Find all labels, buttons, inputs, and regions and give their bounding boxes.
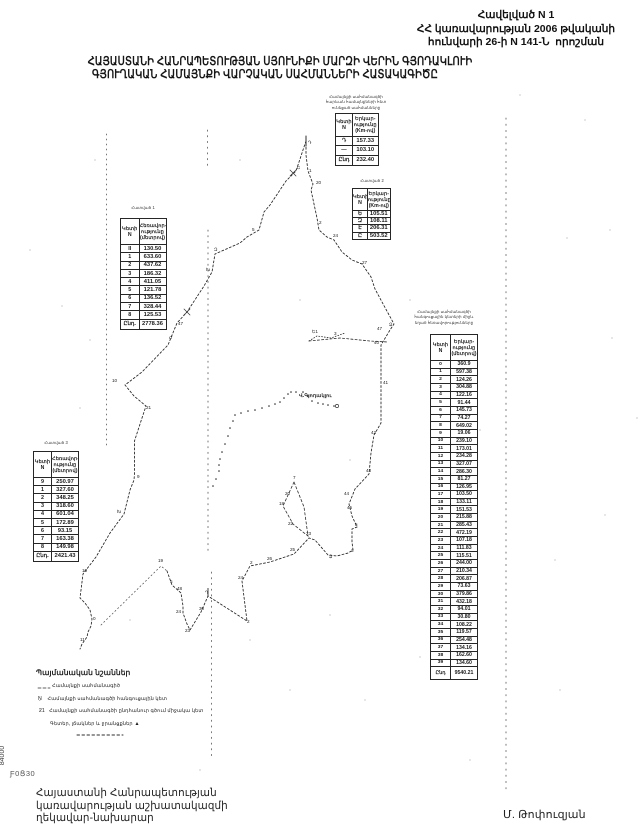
svg-text:19: 19 — [158, 558, 164, 563]
svg-text:Ե: Ե — [297, 165, 301, 170]
svg-text:24: 24 — [176, 609, 182, 614]
svg-text:Զ: Զ — [214, 247, 218, 252]
svg-text:20: 20 — [316, 180, 322, 185]
svg-text:Ձ: Ձ — [329, 554, 333, 559]
svg-text:27: 27 — [362, 260, 368, 265]
svg-text:44: 44 — [344, 491, 350, 496]
svg-text:2: 2 — [319, 220, 322, 225]
svg-text:1: 1 — [309, 168, 312, 173]
svg-text:3: 3 — [351, 548, 354, 553]
svg-text:24: 24 — [333, 233, 339, 238]
svg-text:23: 23 — [306, 531, 312, 536]
svg-text:5: 5 — [252, 227, 255, 232]
svg-text:10: 10 — [82, 568, 88, 573]
svg-text:Վ.Գյոդակլու: Վ.Գյոդակլու — [299, 393, 332, 399]
svg-text:30: 30 — [199, 606, 205, 611]
svg-text:Խ: Խ — [206, 267, 211, 272]
svg-text:20: 20 — [285, 491, 291, 496]
svg-text:5: 5 — [355, 522, 358, 527]
svg-text:48: 48 — [177, 586, 183, 591]
svg-text:2: 2 — [247, 619, 250, 624]
svg-text:45: 45 — [347, 505, 353, 510]
svg-text:5: 5 — [170, 579, 173, 584]
svg-text:26: 26 — [267, 556, 273, 561]
svg-text:3: 3 — [334, 331, 337, 336]
svg-text:47: 47 — [178, 321, 184, 326]
svg-text:9: 9 — [137, 474, 140, 479]
svg-text:41: 41 — [383, 380, 389, 385]
svg-text:Դ: Դ — [308, 140, 312, 145]
svg-text:11: 11 — [80, 637, 85, 642]
svg-text:23: 23 — [185, 628, 191, 633]
svg-text:Ձ: Ձ — [389, 322, 393, 327]
svg-text:0: 0 — [93, 616, 96, 621]
svg-text:Դ: Դ — [205, 590, 209, 595]
svg-text:Ե1: Ե1 — [312, 329, 318, 334]
svg-text:18: 18 — [279, 501, 285, 506]
svg-text:40: 40 — [374, 340, 380, 345]
svg-text:42: 42 — [371, 430, 377, 435]
svg-text:21: 21 — [146, 405, 152, 410]
svg-text:43: 43 — [366, 468, 372, 473]
svg-text:10: 10 — [112, 378, 118, 383]
svg-text:7: 7 — [293, 475, 296, 480]
svg-text:22: 22 — [288, 521, 294, 526]
svg-text:25: 25 — [290, 547, 296, 552]
svg-text:Խ: Խ — [117, 509, 122, 514]
svg-text:Ժ: Ժ — [169, 335, 173, 340]
svg-text:2: 2 — [250, 560, 253, 565]
svg-text:47: 47 — [377, 326, 383, 331]
svg-text:24: 24 — [238, 575, 244, 580]
